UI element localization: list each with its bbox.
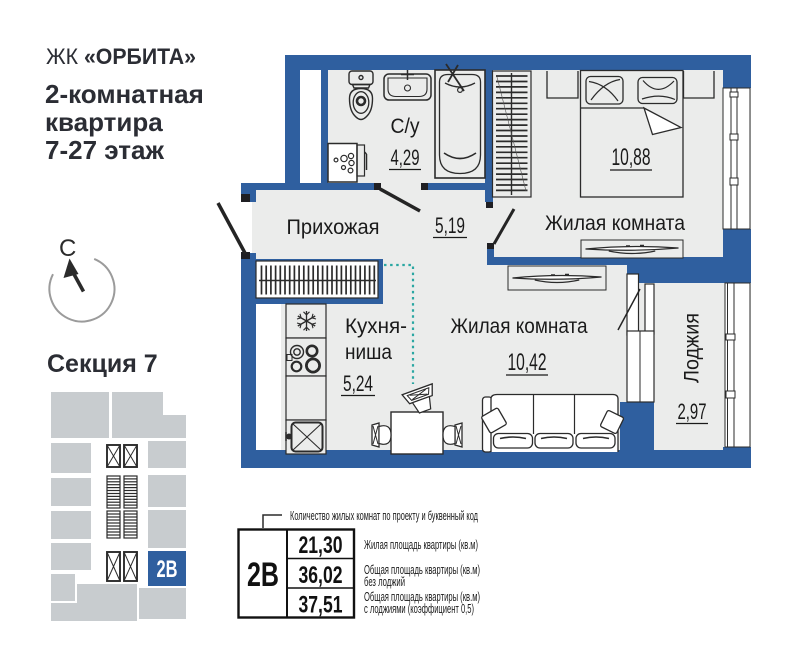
svg-text:5,19: 5,19 (435, 213, 465, 238)
svg-text:7-27 этаж: 7-27 этаж (45, 135, 164, 165)
svg-text:Лоджия: Лоджия (680, 313, 704, 383)
svg-text:4,29: 4,29 (391, 145, 420, 170)
svg-text:10,88: 10,88 (612, 144, 651, 171)
svg-text:2В: 2В (157, 556, 178, 583)
svg-text:Прихожая: Прихожая (287, 215, 380, 239)
svg-text:37,51: 37,51 (299, 592, 343, 619)
svg-text:без лоджий: без лоджий (364, 575, 405, 589)
svg-text:10,42: 10,42 (508, 349, 547, 376)
svg-text:С: С (59, 235, 76, 262)
svg-text:2,97: 2,97 (678, 399, 707, 424)
svg-text:квартира: квартира (45, 107, 163, 137)
svg-text:ЖК «ОРБИТА»: ЖК «ОРБИТА» (46, 44, 196, 69)
svg-text:С/у: С/у (391, 115, 420, 138)
svg-text:5,24: 5,24 (343, 371, 373, 396)
svg-text:с лоджиями (коэффициент 0,5): с лоджиями (коэффициент 0,5) (364, 602, 474, 616)
svg-text:2-комнатная: 2-комнатная (45, 79, 204, 109)
svg-text:Жилая площадь квартиры (кв.м): Жилая площадь квартиры (кв.м) (364, 538, 478, 552)
svg-text:2В: 2В (247, 556, 279, 594)
svg-text:Жилая комната: Жилая комната (545, 211, 685, 235)
svg-text:Количество жилых комнат по про: Количество жилых комнат по проекту и бук… (290, 509, 478, 523)
svg-text:ниша: ниша (345, 340, 392, 364)
svg-text:Секция 7: Секция 7 (47, 350, 158, 378)
svg-text:21,30: 21,30 (299, 532, 343, 559)
svg-text:36,02: 36,02 (299, 562, 343, 589)
svg-text:Кухня-: Кухня- (345, 314, 407, 338)
svg-text:Жилая комната: Жилая комната (451, 314, 588, 338)
